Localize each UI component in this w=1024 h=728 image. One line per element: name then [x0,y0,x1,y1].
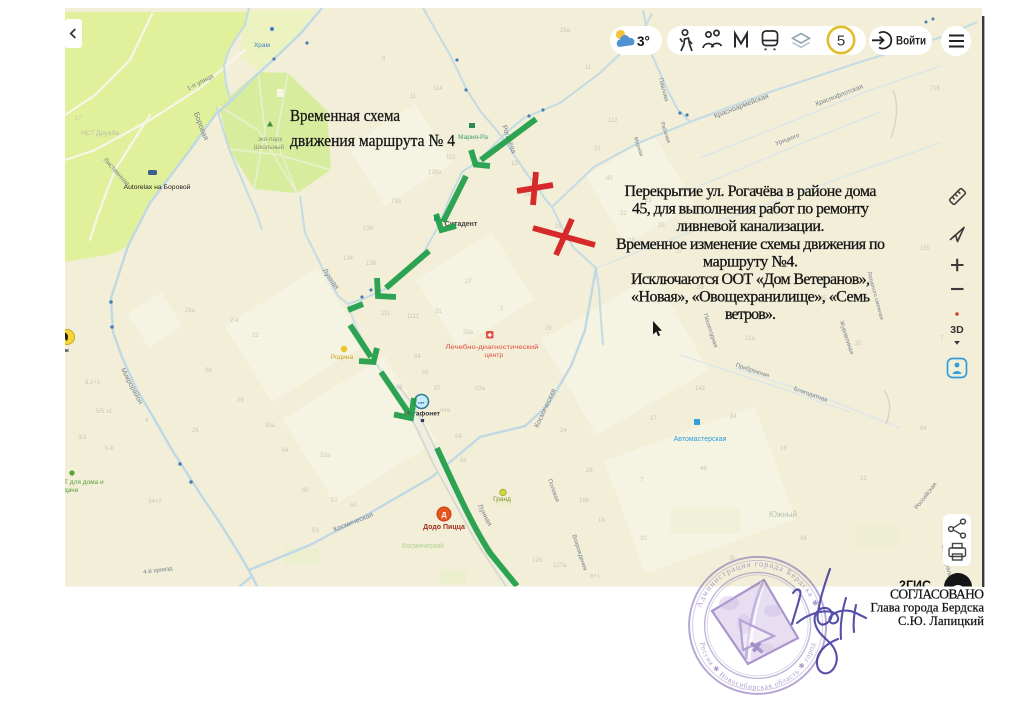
svg-text:21: 21 [435,309,442,315]
svg-text:Войти: Войти [896,34,926,48]
svg-text:58: 58 [396,385,403,391]
svg-text:21: 21 [594,146,601,152]
svg-text:142: 142 [695,386,706,392]
svg-text:15а: 15а [560,28,571,34]
svg-text:55: 55 [460,458,467,464]
svg-text:64: 64 [282,448,289,454]
svg-text:дачи: дачи [64,487,79,494]
svg-text:центр: центр [485,352,503,359]
svg-text:25: 25 [658,223,665,229]
svg-text:20а: 20а [463,330,474,336]
svg-text:23а: 23а [475,386,486,392]
svg-text:Мария-Ра: Мария-Ра [458,134,488,141]
svg-text:29: 29 [237,398,244,404]
svg-text:12: 12 [860,476,867,482]
svg-text:2.4: 2.4 [230,318,239,324]
svg-text:45, для выполнения работ по ре: 45, для выполнения работ по ремонту [632,201,869,218]
svg-text:НСТ Дружба: НСТ Дружба [81,129,119,137]
svg-text:Храм: Храм [254,42,271,49]
svg-text:3/3: 3/3 [78,435,87,441]
svg-text:57: 57 [434,386,441,392]
svg-text:52: 52 [331,498,338,504]
svg-text:45: 45 [606,176,613,182]
svg-text:3D: 3D [950,324,964,336]
svg-text:32а: 32а [320,453,331,459]
svg-text:Перекрытие ул. Рогачёва в райо: Перекрытие ул. Рогачёва в районе дома [625,183,877,200]
svg-text:166: 166 [579,498,590,504]
svg-text:Додо Пицца: Додо Пицца [423,524,465,531]
svg-text:22: 22 [620,211,627,217]
svg-text:716: 716 [930,86,941,92]
svg-text:21а: 21а [745,336,756,342]
svg-text:5/5 х1: 5/5 х1 [96,409,113,415]
svg-text:нет: нет [418,400,425,405]
svg-text:53: 53 [312,528,319,534]
svg-text:26: 26 [586,468,593,474]
svg-text:138: 138 [363,226,374,232]
svg-text:16: 16 [780,446,787,452]
svg-text:34: 34 [800,536,807,542]
svg-text:126а: 126а [428,170,442,176]
svg-text:136: 136 [366,261,377,267]
svg-text:34+2: 34+2 [148,499,162,505]
svg-text:ливневой канализации.: ливневой канализации. [677,218,825,235]
svg-text:150: 150 [920,246,931,252]
svg-text:30а: 30а [265,423,276,429]
svg-text:Autorelax на Боровой: Autorelax на Боровой [124,183,191,191]
svg-text:10: 10 [640,536,647,542]
svg-text:5-6: 5-6 [105,446,114,452]
svg-text:С.Ю. Лапицкий: С.Ю. Лапицкий [898,614,984,628]
svg-text:111: 111 [381,311,391,317]
svg-text:73а: 73а [391,199,402,205]
svg-text:Автомастерская: Автомастерская [674,436,727,443]
svg-text:114: 114 [433,86,443,92]
svg-text:26: 26 [192,428,199,434]
svg-text:14: 14 [598,518,605,524]
svg-text:55: 55 [422,370,429,376]
svg-text:25: 25 [555,224,562,230]
svg-text:Временное изменение схемы движ: Временное изменение схемы движения по [616,236,885,253]
svg-text:11: 11 [410,94,417,100]
svg-text:64: 64 [920,426,927,432]
svg-text:17: 17 [650,416,657,422]
svg-text:Родина: Родина [331,354,354,361]
svg-text:Гранд: Гранд [493,496,511,503]
svg-text:Школьный: Школьный [254,144,284,151]
svg-text:84: 84 [730,414,737,420]
svg-text:движения маршрута № 4: движения маршрута № 4 [290,131,455,150]
svg-text:46: 46 [700,466,707,472]
svg-text:1111: 1111 [407,314,420,320]
svg-text:28: 28 [205,368,212,374]
svg-text:15: 15 [524,192,531,198]
svg-text:54: 54 [455,434,462,440]
svg-text:маршруту №4.: маршруту №4. [703,253,798,270]
svg-text:3°: 3° [637,34,650,49]
svg-text:Т для дома и: Т для дома и [64,479,104,486]
svg-text:эко-парк: эко-парк [258,136,283,143]
svg-text:ветров».: ветров». [725,306,776,323]
svg-text:8.2+1: 8.2+1 [85,380,101,386]
svg-text:26: 26 [545,326,552,332]
svg-text:11: 11 [585,65,592,71]
svg-text:8+1: 8+1 [590,574,601,580]
svg-text:Лечебно-диагностический: Лечебно-диагностический [446,343,539,351]
svg-text:Временная схема: Временная схема [290,106,400,125]
svg-text:27: 27 [465,279,472,285]
svg-text:22: 22 [252,333,259,339]
svg-text:126: 126 [532,558,543,564]
svg-text:Исключаются ООТ «Дом Ветеранов: Исключаются ООТ «Дом Ветеранов», [631,271,870,288]
svg-text:112: 112 [608,118,618,124]
svg-text:24: 24 [560,428,567,434]
svg-text:44а: 44а [440,408,451,414]
svg-text:134: 134 [343,256,354,262]
svg-text:65: 65 [302,488,309,494]
svg-text:СОГЛАСОВАНО: СОГЛАСОВАНО [890,587,984,602]
svg-text:5: 5 [837,33,845,50]
svg-text:112: 112 [446,155,456,161]
svg-text:50: 50 [350,503,357,509]
svg-text:54: 54 [414,354,421,360]
svg-text:26а: 26а [185,308,196,314]
svg-text:«Новая», «Овощехранилище», «Се: «Новая», «Овощехранилище», «Семь [631,289,870,306]
svg-text:Глава города Бердска: Глава города Бердска [871,601,985,615]
svg-text:13: 13 [511,161,518,167]
svg-text:Космический: Космический [402,542,444,550]
svg-text:31: 31 [855,341,862,347]
svg-text:Д: Д [442,512,447,519]
svg-text:17: 17 [75,116,82,122]
svg-text:127а: 127а [553,563,567,569]
svg-text:Южный: Южный [769,510,797,519]
